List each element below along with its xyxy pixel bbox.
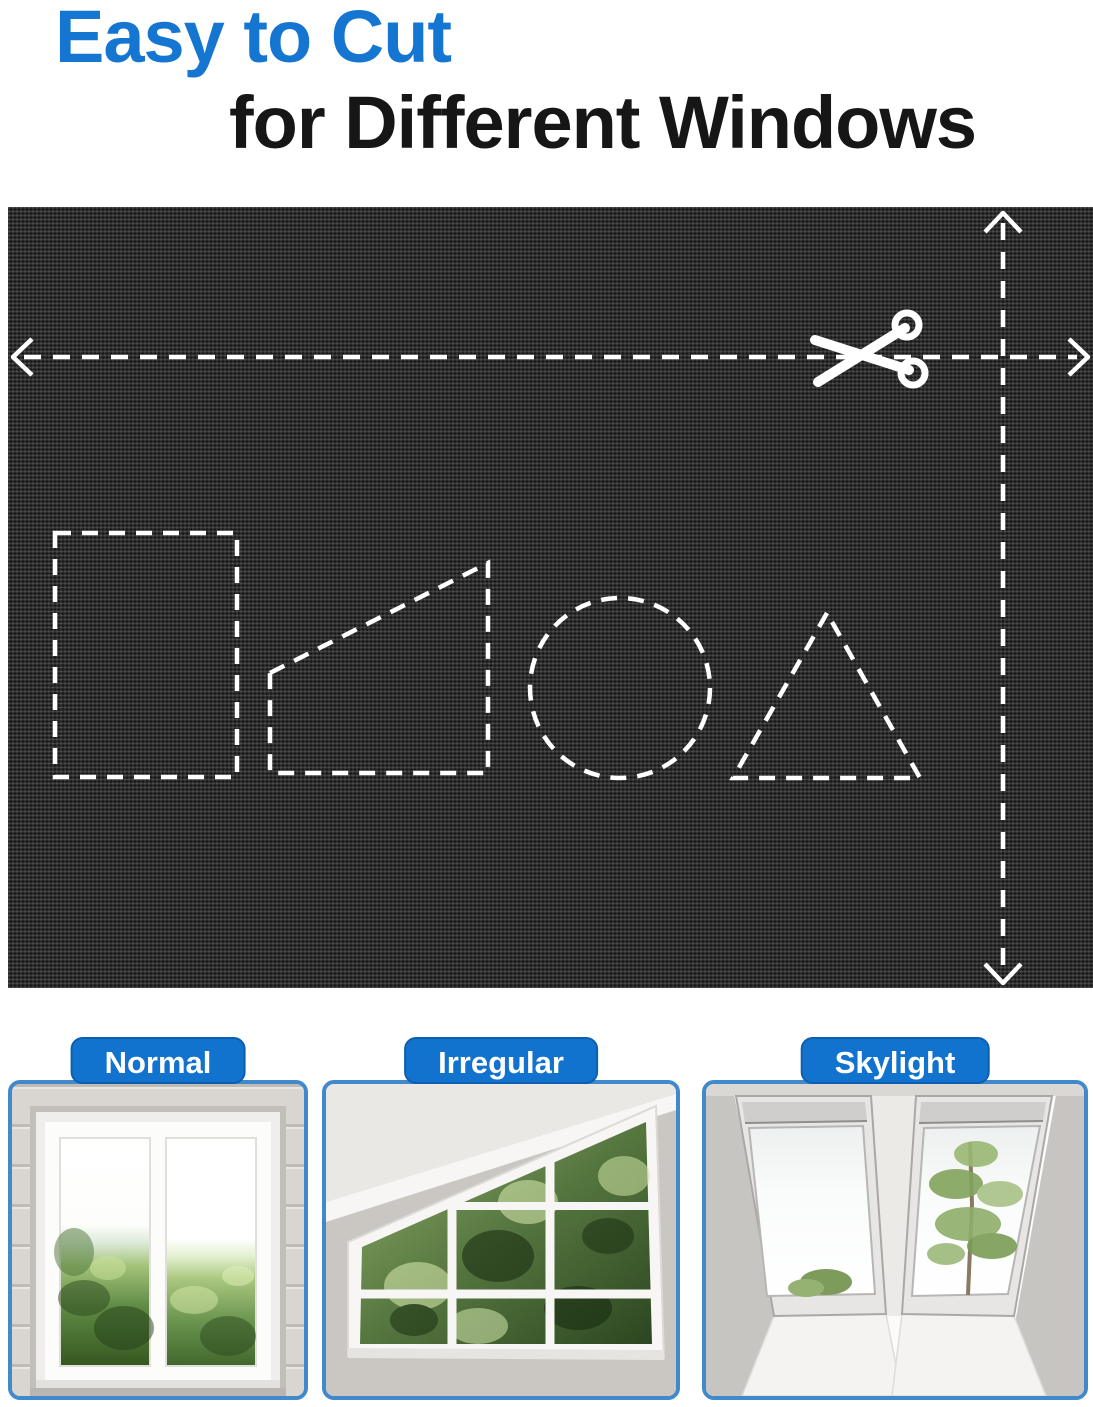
scissors-icon — [815, 313, 925, 385]
window-card-skylight — [702, 1080, 1088, 1400]
cut-shape-circle — [530, 598, 710, 778]
headline-main: for Different Windows — [229, 80, 976, 166]
fabric-panel — [8, 207, 1093, 988]
label-badge-irregular: Irregular — [404, 1037, 598, 1084]
cut-shape-trapezoid — [270, 563, 488, 773]
window-card-irregular — [322, 1080, 680, 1400]
cut-shape-triangle — [733, 613, 920, 778]
headline-accent: Easy to Cut — [55, 0, 451, 80]
label-badge-normal: Normal — [71, 1037, 246, 1084]
irregular-window-photo — [326, 1084, 676, 1396]
skylight-window-photo — [706, 1084, 1084, 1396]
window-card-normal — [8, 1080, 308, 1400]
page: Easy to Cut for Different Windows — [0, 0, 1093, 1407]
cutting-guides — [8, 207, 1093, 988]
normal-window-photo — [12, 1084, 304, 1396]
vertical-cut-arrow — [985, 213, 1021, 983]
label-badge-skylight: Skylight — [801, 1037, 990, 1084]
cut-shape-rectangle — [55, 533, 237, 777]
